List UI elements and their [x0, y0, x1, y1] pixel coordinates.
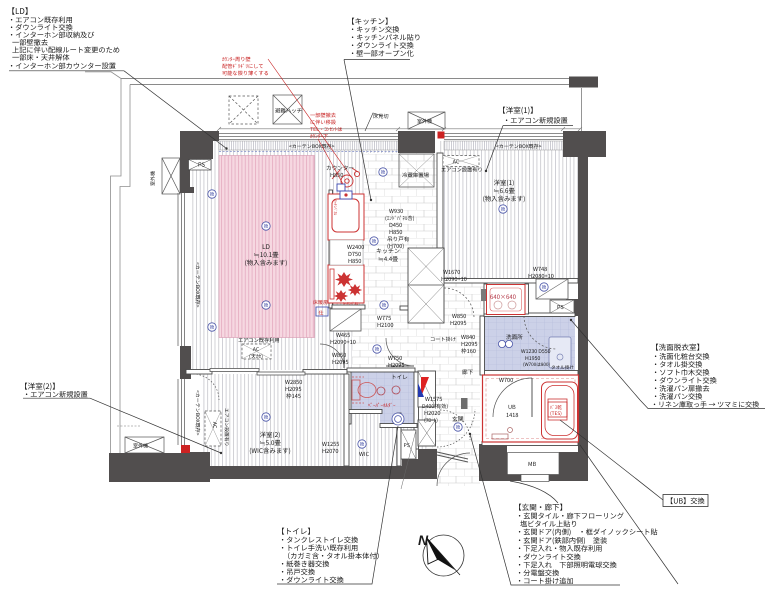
svg-text:N: N: [418, 532, 429, 548]
